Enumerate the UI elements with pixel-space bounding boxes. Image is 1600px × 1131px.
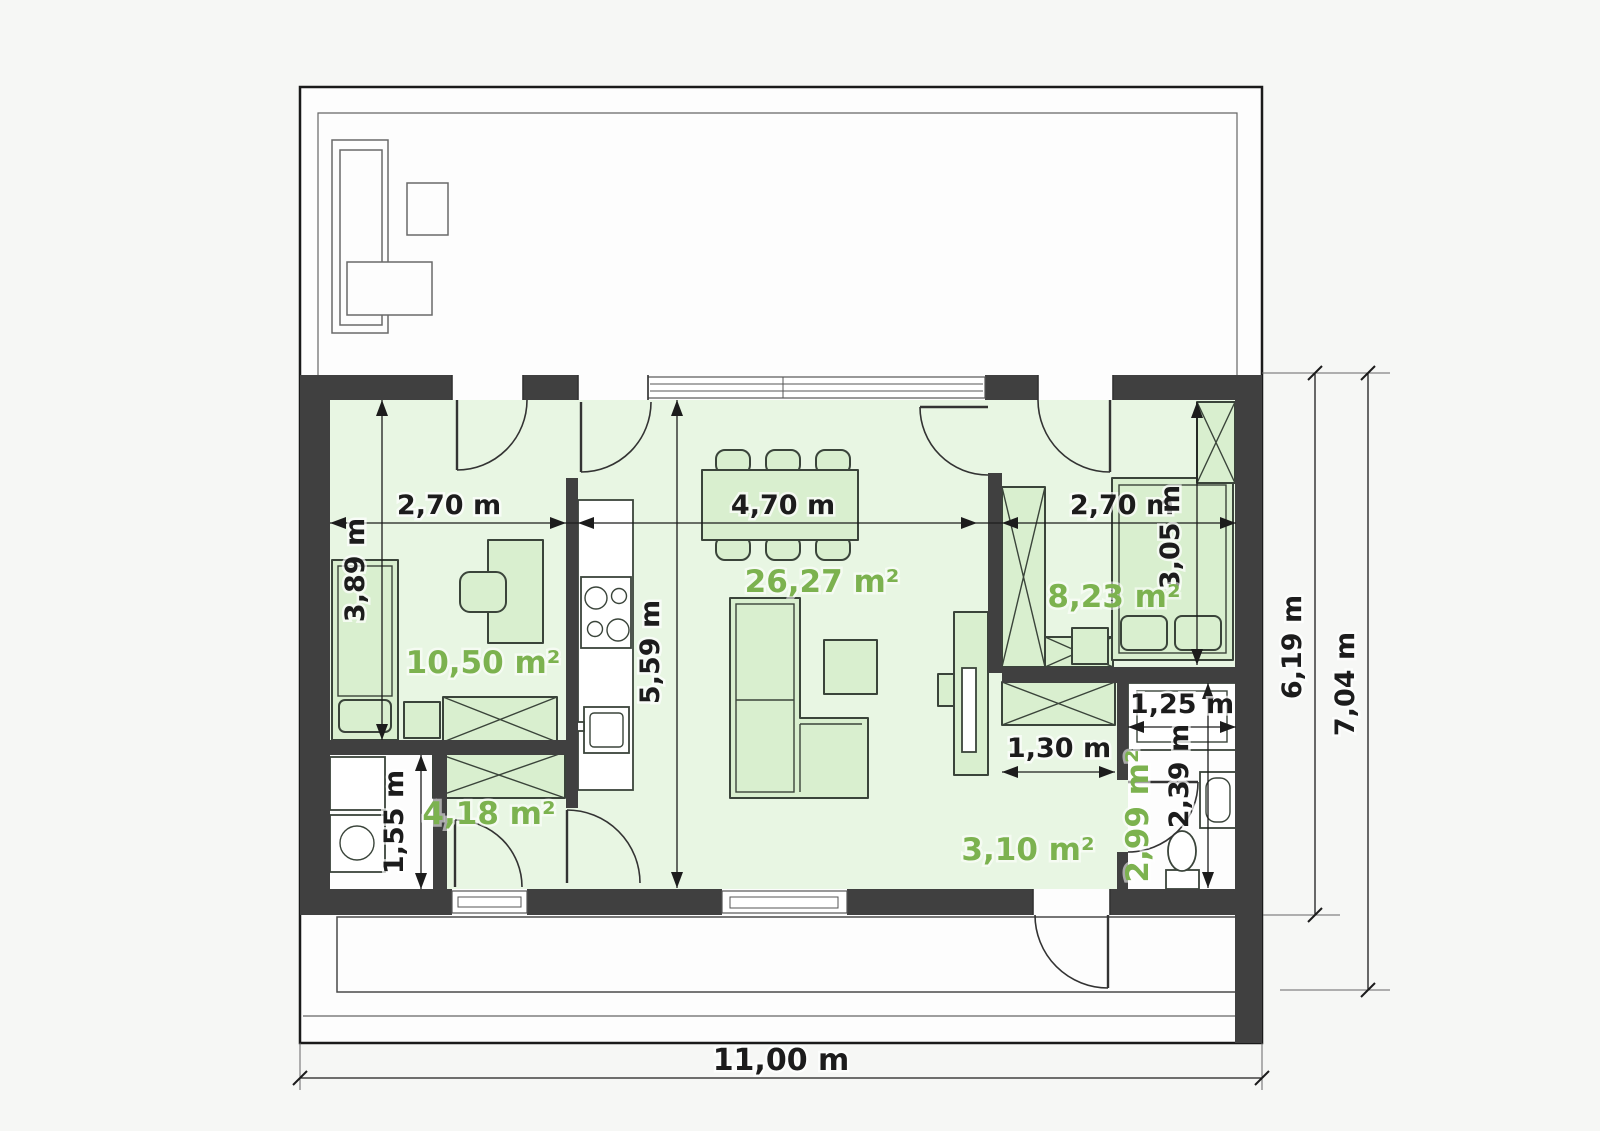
wall-bottom [527, 889, 722, 915]
area-label-entry: 3,10 m² [961, 832, 1094, 868]
wall-left [300, 375, 330, 915]
area-label-bathroom: 2,99 m² [1120, 749, 1156, 882]
wall-bottom [1110, 889, 1235, 915]
wall-bottom [847, 889, 1033, 915]
dim-label-room-left-width: 2,70 m [397, 490, 501, 521]
wall-top [985, 375, 1038, 400]
nightstand-bedroom [1072, 628, 1108, 664]
coffee-table [824, 640, 877, 694]
area-label-room-left: 10,50 m² [406, 645, 561, 681]
toilet-tank [1166, 870, 1199, 889]
dim-label-utility-depth: 1,55 m [379, 770, 410, 874]
utility-fixtures [330, 757, 385, 872]
dim-label-entry-wardrobe: 1,30 m [1007, 733, 1111, 764]
wall-room-left-bottom [330, 740, 578, 755]
wall-bedroom-bottom [1002, 667, 1235, 683]
utility-counter [330, 757, 385, 810]
wall-top [523, 375, 578, 400]
tv [962, 668, 976, 752]
wall-living-bedroom [988, 473, 1002, 673]
dim-label-house-depth: 6,19 m [1277, 595, 1308, 699]
media-box [938, 674, 954, 706]
nightstand-left-room [404, 702, 440, 738]
dim-label-total-width: 11,00 m [713, 1043, 850, 1078]
bed-pillow [1121, 616, 1167, 650]
dim-label-living-depth: 5,59 m [635, 600, 666, 704]
window-living-bottom [722, 891, 847, 913]
kitchen [574, 500, 633, 790]
wall-bottom [300, 889, 452, 915]
dim-label-bathroom-width: 1,25 m [1130, 689, 1234, 720]
porch-slab [337, 917, 1237, 992]
area-label-bedroom: 8,23 m² [1047, 579, 1180, 615]
floor-plan-drawing: 2,70 m 4,70 m 2,70 m 3,89 m 5,59 m 1,55 … [0, 0, 1600, 1131]
dim-label-room-left-depth: 3,89 m [340, 518, 371, 622]
wall-kitchen-partition [566, 478, 578, 808]
desk-chair [460, 572, 506, 612]
area-label-living: 26,27 m² [745, 564, 900, 600]
stove [581, 577, 631, 648]
window-hall-bottom [452, 891, 527, 913]
dim-label-bedroom-depth: 3,05 m [1155, 485, 1186, 589]
area-label-hall: 4,18 m² [422, 796, 555, 832]
washing-machine [330, 815, 385, 872]
terrace-table [407, 183, 448, 235]
dim-label-total-depth: 7,04 m [1330, 632, 1361, 736]
bed-pillow [1175, 616, 1221, 650]
wall-right [1235, 375, 1262, 1043]
floor-plan-page: 2,70 m 4,70 m 2,70 m 3,89 m 5,59 m 1,55 … [0, 0, 1600, 1131]
dim-label-living-width: 4,70 m [731, 490, 835, 521]
dim-label-bathroom-depth: 2,39 m [1164, 724, 1195, 828]
window-living-top [648, 377, 985, 398]
terrace-chaise [347, 262, 432, 315]
